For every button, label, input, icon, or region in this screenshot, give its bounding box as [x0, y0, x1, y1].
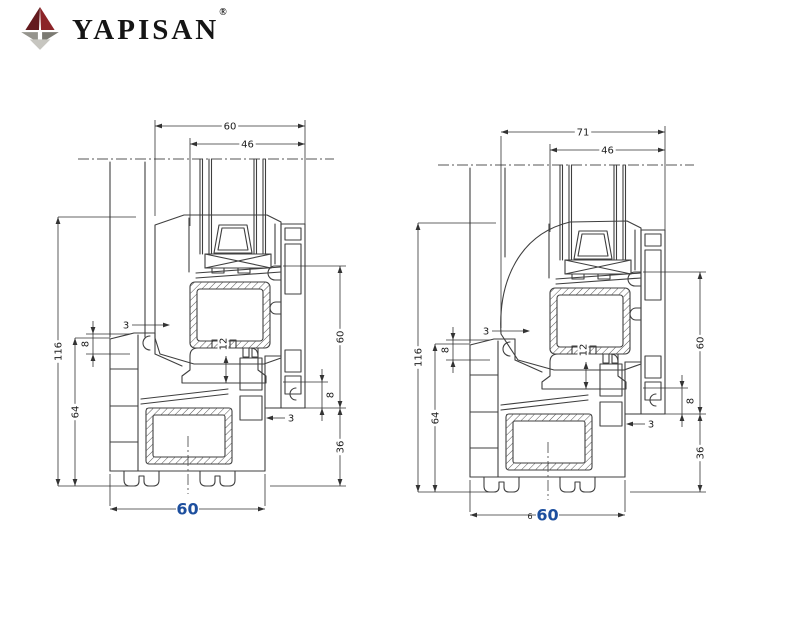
profile-section-svg-left: 604611664836083361260: [38, 106, 373, 536]
dim-bottom-width: 60: [176, 500, 198, 519]
profile-drawing-right: 7146116648360833612660: [398, 112, 733, 542]
dim-total-height: 116: [54, 342, 65, 361]
dim-left-gap: 8: [81, 341, 92, 347]
dim-bottom-width: 60: [536, 506, 558, 525]
dim-steel-depth: 12: [579, 344, 590, 357]
profile-section-svg-right: 7146116648360833612660: [398, 112, 733, 542]
profile-drawing-left: 604611664836083361260: [38, 106, 373, 536]
registered-mark: ®: [219, 7, 226, 18]
dim-frame-height: 64: [71, 406, 82, 419]
dim-right-gap: 8: [686, 398, 697, 404]
dim-glazing-width: 46: [601, 146, 614, 157]
dim-frame-height: 64: [431, 412, 442, 425]
dim-left-wall: 3: [123, 321, 129, 332]
logo-facet-red: [40, 7, 55, 30]
dim-glazing-width: 46: [241, 140, 254, 151]
dim-right-wall: 3: [288, 414, 294, 425]
yapisan-logo: YAPISAN®: [16, 6, 227, 54]
dim-lower-height: 36: [696, 447, 707, 460]
dim-right-wall: 3: [648, 420, 654, 431]
dim-left-gap: 8: [441, 347, 452, 353]
dim-bottom-prefix: 6: [527, 512, 532, 521]
dim-total-height: 116: [414, 348, 425, 367]
dim-left-wall: 3: [483, 327, 489, 338]
page: YAPISAN® 604611664836083361260 714611664…: [0, 0, 800, 640]
dim-steel-depth: 12: [219, 338, 230, 351]
dim-top-width: 60: [224, 122, 237, 133]
logo-diamond-icon: [16, 6, 64, 54]
logo-facet-red-dark: [25, 7, 40, 30]
dim-top-width: 71: [577, 128, 590, 139]
dim-lower-height: 36: [336, 441, 347, 454]
dim-right-gap: 8: [326, 392, 337, 398]
dim-right-height: 60: [336, 331, 347, 344]
dim-right-height: 60: [696, 337, 707, 350]
brand-name: YAPISAN®: [72, 16, 227, 45]
logo-facet-gray-bottom: [30, 39, 51, 49]
